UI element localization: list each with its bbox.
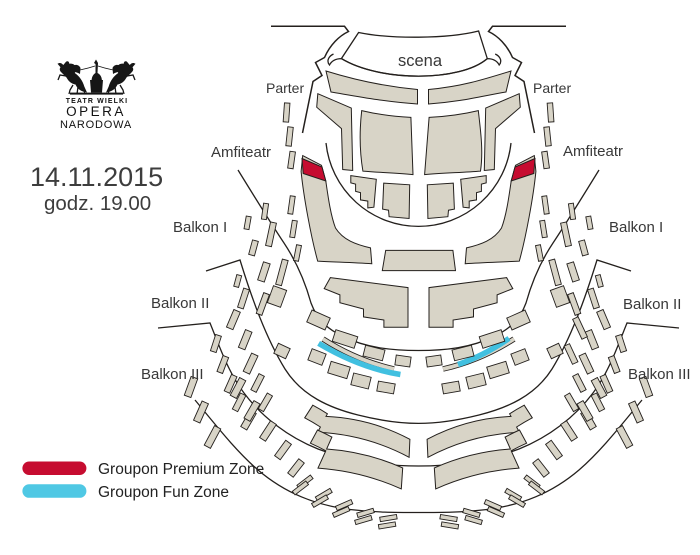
svg-text:Groupon Fun Zone: Groupon Fun Zone: [98, 484, 229, 501]
svg-text:Balkon I: Balkon I: [609, 219, 663, 236]
svg-text:Balkon III: Balkon III: [141, 366, 204, 383]
svg-text:NARODOWA: NARODOWA: [60, 119, 132, 131]
svg-text:scena: scena: [398, 52, 443, 70]
svg-text:Balkon III: Balkon III: [628, 366, 691, 383]
svg-text:godz. 19.00: godz. 19.00: [44, 192, 151, 215]
svg-text:Groupon Premium Zone: Groupon Premium Zone: [98, 461, 264, 478]
svg-text:14.11.2015: 14.11.2015: [30, 162, 163, 192]
svg-text:Balkon II: Balkon II: [623, 296, 681, 313]
svg-text:Amfiteatr: Amfiteatr: [211, 144, 271, 161]
svg-text:Parter: Parter: [266, 80, 304, 96]
svg-text:OPERA: OPERA: [66, 104, 126, 119]
svg-text:Amfiteatr: Amfiteatr: [563, 143, 623, 160]
svg-text:Balkon II: Balkon II: [151, 295, 209, 312]
svg-text:Balkon I: Balkon I: [173, 219, 227, 236]
svg-text:Parter: Parter: [533, 80, 571, 96]
